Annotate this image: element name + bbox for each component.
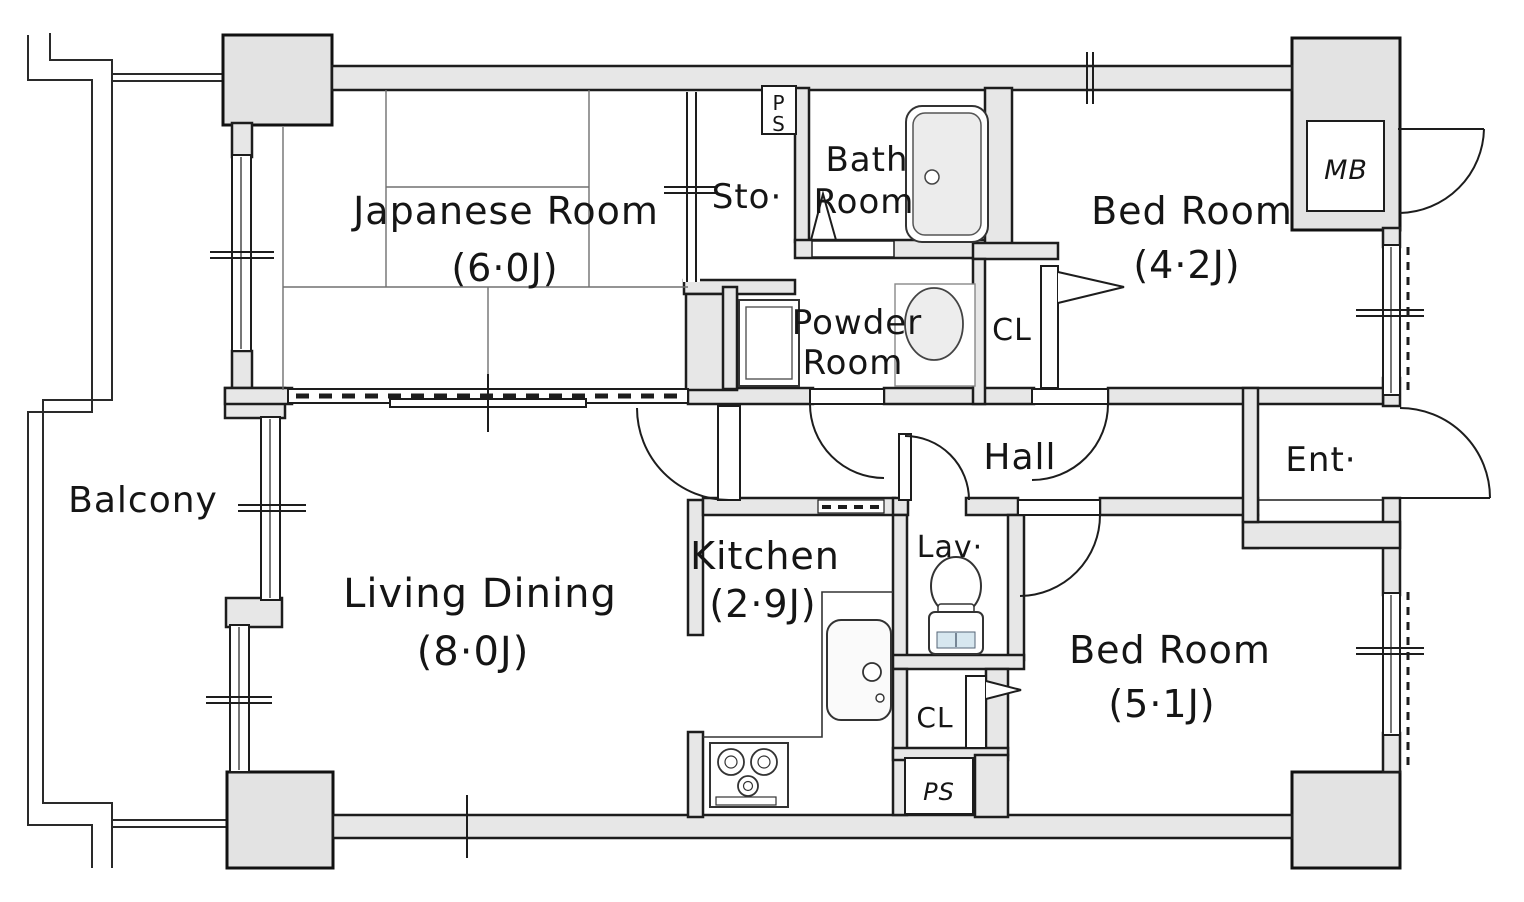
bedroom-north-label: Bed Room bbox=[1091, 189, 1293, 233]
washbasin-outer bbox=[739, 300, 799, 386]
bedroom-south-size: (5·1J) bbox=[1108, 682, 1215, 726]
bath-room-label-line1: Bath bbox=[825, 140, 908, 180]
wall-left-2 bbox=[232, 351, 252, 390]
wall-pillar-bottom-right bbox=[1292, 772, 1400, 868]
wall-hall-south-2 bbox=[966, 498, 1018, 515]
balcony-label: Balcony bbox=[68, 480, 218, 521]
kitchen-faucet bbox=[863, 663, 881, 681]
wall-entrance-bottom bbox=[1243, 522, 1400, 548]
closet-lower-label: CL bbox=[916, 701, 953, 734]
japanese-room-size: (6·0J) bbox=[451, 246, 558, 290]
door-leaf-bedroom-north bbox=[1032, 389, 1108, 404]
entrance-label: Ent· bbox=[1285, 440, 1356, 480]
wall-lav-bottom bbox=[893, 655, 1024, 669]
wall-pillar-bottom-left bbox=[227, 772, 333, 868]
bath-door-gap bbox=[812, 241, 894, 257]
pipe-shaft-top-letter-s: S bbox=[772, 112, 786, 136]
door-arc-meter-box bbox=[1400, 129, 1484, 213]
lavatory-label: Lav· bbox=[917, 530, 983, 565]
floor-plan-drawing: Balcony Japanese Room (6·0J) Sto· P S Ba… bbox=[0, 0, 1524, 902]
door-arc-entrance bbox=[1400, 408, 1490, 498]
bathtub-drain bbox=[925, 170, 939, 184]
living-dining-size: (8·0J) bbox=[417, 629, 530, 675]
meter-box-label: MB bbox=[1324, 155, 1368, 186]
door-leaf-bedroom-south bbox=[1018, 500, 1100, 515]
balcony-rail-inner bbox=[43, 33, 112, 868]
bathtub bbox=[906, 106, 988, 242]
japanese-room-label: Japanese Room bbox=[351, 189, 659, 233]
balcony-divider-top bbox=[112, 74, 223, 81]
folding-door-closet-upper bbox=[1058, 272, 1124, 303]
wall-top bbox=[332, 66, 1292, 90]
bath-room-label-line2: Room bbox=[814, 182, 915, 222]
wall-closet-upper-top bbox=[973, 243, 1058, 259]
wall-powder-left bbox=[723, 287, 737, 389]
door-leaf-living-hall bbox=[718, 406, 740, 500]
wall-divider-3 bbox=[884, 388, 1034, 404]
storage-label: Sto· bbox=[712, 177, 783, 217]
bedroom-north-size: (4·2J) bbox=[1133, 243, 1240, 287]
door-arc-living-hall bbox=[637, 408, 729, 500]
door-arc-bedroom-south bbox=[1020, 515, 1100, 596]
door-arc-powder-room bbox=[810, 404, 884, 478]
closet-upper-label: CL bbox=[992, 313, 1032, 348]
wall-lav-right bbox=[1008, 515, 1024, 660]
living-dining-label: Living Dining bbox=[343, 571, 617, 617]
washbasin bbox=[739, 300, 799, 386]
gas-stove bbox=[710, 743, 788, 807]
bedroom-south-label: Bed Room bbox=[1069, 628, 1271, 672]
wall-hall-south-3 bbox=[1100, 498, 1258, 515]
kitchen-drain bbox=[876, 694, 884, 702]
wall-bottom bbox=[333, 815, 1292, 838]
wall-kitchen-left-lower bbox=[688, 732, 703, 817]
wall-lav-left bbox=[893, 515, 907, 660]
door-leaf-lavatory bbox=[899, 434, 911, 500]
kitchen-size: (2·9J) bbox=[709, 582, 816, 626]
wall-bath-left bbox=[795, 88, 809, 242]
pipe-shaft-bottom-label: PS bbox=[923, 778, 955, 806]
wall-divider-1 bbox=[225, 388, 292, 404]
wall-entrance-left bbox=[1243, 388, 1258, 522]
tatami-mat-lines bbox=[283, 90, 688, 390]
door-leaf-powder-room bbox=[810, 389, 884, 404]
balcony-railing bbox=[28, 33, 227, 868]
powder-room-label-line2: Room bbox=[803, 343, 904, 383]
wall-left-jog-lower bbox=[226, 598, 282, 627]
folding-door-leaf-closet-lower bbox=[966, 676, 986, 748]
hall-label: Hall bbox=[983, 437, 1056, 478]
wall-bath-right bbox=[985, 88, 1012, 258]
wall-left-1 bbox=[232, 123, 252, 157]
wall-right-4 bbox=[1383, 733, 1400, 772]
walls bbox=[223, 35, 1400, 868]
powder-room-label-line1: Powder bbox=[792, 303, 922, 343]
kitchen-label: Kitchen bbox=[690, 534, 840, 578]
balcony-rail-outer bbox=[28, 35, 92, 868]
wall-storage-bottom bbox=[684, 280, 795, 294]
folding-door-leaf-closet-upper bbox=[1041, 266, 1058, 388]
door-arc-lavatory bbox=[905, 436, 969, 500]
balcony-divider-bottom bbox=[112, 820, 227, 827]
bathtub-inner bbox=[913, 113, 981, 235]
wall-pillar-top-left bbox=[223, 35, 332, 125]
floor-plan-page: Balcony Japanese Room (6·0J) Sto· P S Ba… bbox=[0, 0, 1524, 902]
wall-ps-right bbox=[975, 755, 1008, 817]
toilet bbox=[929, 557, 983, 654]
